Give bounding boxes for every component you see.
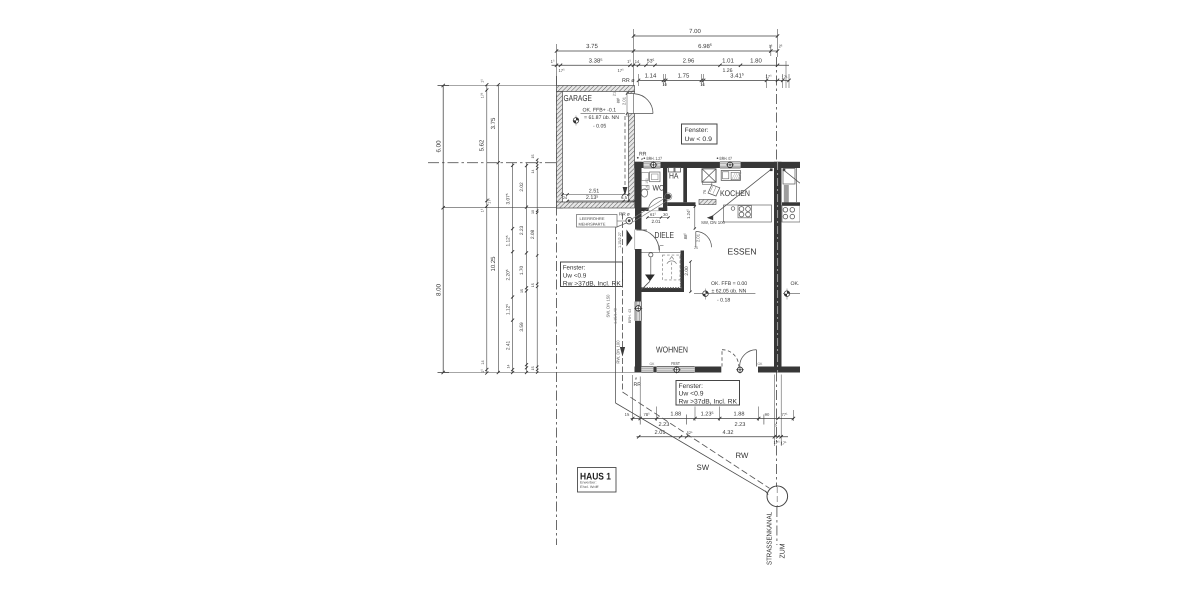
svg-text:LEERROHRE: LEERROHRE xyxy=(580,216,605,221)
svg-text:1.14: 1.14 xyxy=(645,73,657,80)
svg-text:2.08: 2.08 xyxy=(530,230,536,240)
svg-text:OK. FFB+ -0.1: OK. FFB+ -0.1 xyxy=(583,108,617,114)
svg-text:OK. FFB = 0.00: OK. FFB = 0.00 xyxy=(711,281,747,287)
svg-text:1.15/1.40: 1.15/1.40 xyxy=(614,308,618,324)
svg-text:16: 16 xyxy=(700,82,705,87)
svg-text:10.25: 10.25 xyxy=(490,256,497,272)
svg-text:5: 5 xyxy=(775,423,777,427)
svg-text:1.15/2.27: 1.15/2.27 xyxy=(618,232,622,248)
svg-text:76: 76 xyxy=(702,189,707,194)
svg-text:10: 10 xyxy=(662,82,667,87)
svg-text:2.02: 2.02 xyxy=(519,182,525,192)
svg-text:14: 14 xyxy=(531,170,535,174)
svg-text:15: 15 xyxy=(531,366,535,370)
svg-text:6.00: 6.00 xyxy=(435,140,442,153)
svg-text:21: 21 xyxy=(613,92,617,96)
svg-text:FEST: FEST xyxy=(671,361,680,366)
svg-text:2.23: 2.23 xyxy=(734,422,745,428)
svg-text:GARAGE: GARAGE xyxy=(564,93,593,103)
svg-text:15: 15 xyxy=(531,155,535,159)
svg-text:2.00: 2.00 xyxy=(684,266,690,276)
svg-text:1.75: 1.75 xyxy=(678,73,690,80)
svg-text:2.96: 2.96 xyxy=(683,58,695,65)
svg-text:10: 10 xyxy=(531,210,535,214)
svg-text:RW: RW xyxy=(736,451,749,460)
svg-text:Fenster:: Fenster: xyxy=(679,383,704,390)
svg-text:3.75: 3.75 xyxy=(586,43,598,50)
svg-text:4.32: 4.32 xyxy=(723,430,734,436)
svg-text:14: 14 xyxy=(506,365,510,369)
svg-text:BRH. 1.27: BRH. 1.27 xyxy=(647,156,663,161)
svg-text:= 61.87 üb. NN: = 61.87 üb. NN xyxy=(584,115,619,121)
svg-text:2.41: 2.41 xyxy=(505,341,511,351)
svg-text:1.88: 1.88 xyxy=(734,412,745,418)
svg-text:Erwerber:: Erwerber: xyxy=(580,481,597,485)
svg-text:15: 15 xyxy=(520,289,524,293)
svg-text:GK: GK xyxy=(650,362,656,366)
svg-text:2.01: 2.01 xyxy=(655,430,666,436)
svg-text:- 0.18: - 0.18 xyxy=(717,297,730,303)
svg-text:90: 90 xyxy=(765,412,770,417)
svg-text:Fenster:: Fenster: xyxy=(685,127,709,134)
svg-text:RR ø: RR ø xyxy=(619,211,630,216)
svg-text:1.01: 1.01 xyxy=(722,58,734,65)
svg-text:STRASSENKANAL: STRASSENKANAL xyxy=(767,512,774,565)
svg-text:DN 150: DN 150 xyxy=(645,178,649,190)
svg-text:15: 15 xyxy=(531,283,535,287)
svg-text:DIELE: DIELE xyxy=(655,230,675,240)
svg-text:- 0.05: - 0.05 xyxy=(593,123,606,129)
svg-text:RR ø: RR ø xyxy=(622,78,635,84)
svg-text:2.51: 2.51 xyxy=(589,188,600,194)
svg-text:KOCHEN: KOCHEN xyxy=(720,189,750,198)
svg-text:ZUM: ZUM xyxy=(780,543,787,558)
svg-text:2.01: 2.01 xyxy=(652,219,661,224)
svg-text:30: 30 xyxy=(663,212,668,217)
svg-text:SW: SW xyxy=(697,463,710,472)
svg-text:3.75: 3.75 xyxy=(490,117,497,129)
svg-text:14: 14 xyxy=(635,59,640,64)
svg-text:MEHRSPARTE: MEHRSPARTE xyxy=(579,221,606,226)
svg-text:SW, DN 100: SW, DN 100 xyxy=(701,220,726,225)
svg-text:2.01: 2.01 xyxy=(696,233,701,242)
svg-text:8.00: 8.00 xyxy=(435,283,442,296)
svg-text:15: 15 xyxy=(625,412,630,417)
svg-text:WC: WC xyxy=(653,184,665,193)
svg-text:25: 25 xyxy=(694,246,698,250)
svg-text:ESSEN: ESSEN xyxy=(728,247,757,257)
svg-text:RW, DN 100: RW, DN 100 xyxy=(616,340,621,364)
svg-text:Uw <0.9: Uw <0.9 xyxy=(563,273,587,280)
svg-text:BRH. 43: BRH. 43 xyxy=(628,309,632,323)
svg-text:Uw < 0.9: Uw < 0.9 xyxy=(685,136,713,143)
svg-text:2.01: 2.01 xyxy=(622,96,627,105)
svg-text:1.88: 1.88 xyxy=(670,412,681,418)
svg-text:Uw <0.9: Uw <0.9 xyxy=(679,391,704,398)
svg-text:1.80: 1.80 xyxy=(750,58,762,65)
svg-text:HA: HA xyxy=(669,171,679,180)
svg-text:Rw >37dB, Incl. RK: Rw >37dB, Incl. RK xyxy=(679,398,738,405)
svg-text:5.62: 5.62 xyxy=(479,139,486,151)
svg-text:Fenster:: Fenster: xyxy=(563,264,586,271)
svg-text:Rw >37dB, Incl. RK: Rw >37dB, Incl. RK xyxy=(563,280,622,287)
svg-text:3.59: 3.59 xyxy=(519,322,525,332)
svg-text:14: 14 xyxy=(481,360,485,364)
svg-text:WOHNEN: WOHNEN xyxy=(656,345,688,355)
svg-text:BRH. 07: BRH. 07 xyxy=(720,156,733,161)
svg-text:Ehel. Wolff: Ehel. Wolff xyxy=(580,485,599,489)
svg-text:7.00: 7.00 xyxy=(689,28,701,35)
svg-text:SW, DN 150: SW, DN 150 xyxy=(606,294,611,318)
svg-text:1.70: 1.70 xyxy=(519,266,525,276)
svg-text:24: 24 xyxy=(563,196,567,200)
svg-text:6.5: 6.5 xyxy=(621,195,628,200)
svg-text:2.23: 2.23 xyxy=(519,226,525,236)
svg-text:GK: GK xyxy=(758,362,764,366)
svg-text:2.23: 2.23 xyxy=(658,422,669,428)
